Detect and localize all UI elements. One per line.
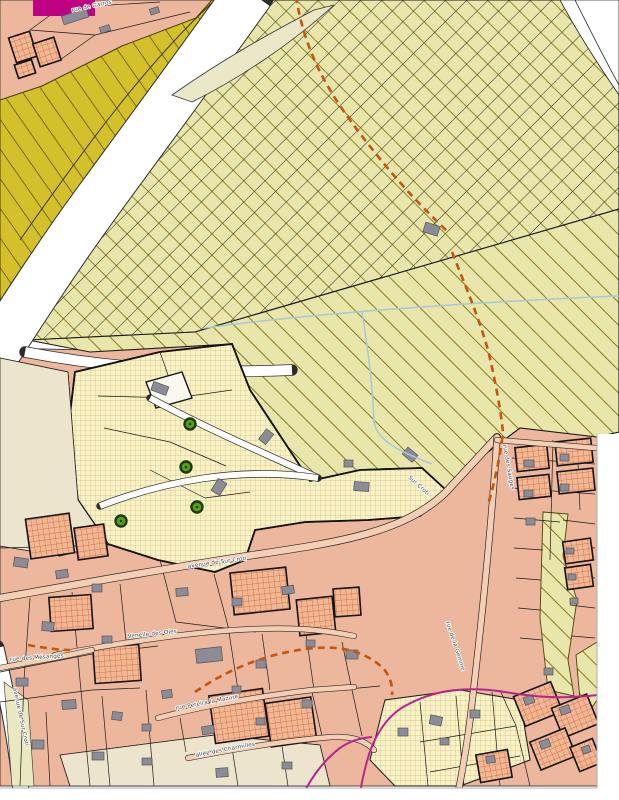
page-margin-right xyxy=(597,434,619,790)
page-margin-bottom xyxy=(0,788,619,800)
map-canvas[interactable]: rue de Garros avenue de Sur Croti Sur Cr… xyxy=(0,0,619,800)
